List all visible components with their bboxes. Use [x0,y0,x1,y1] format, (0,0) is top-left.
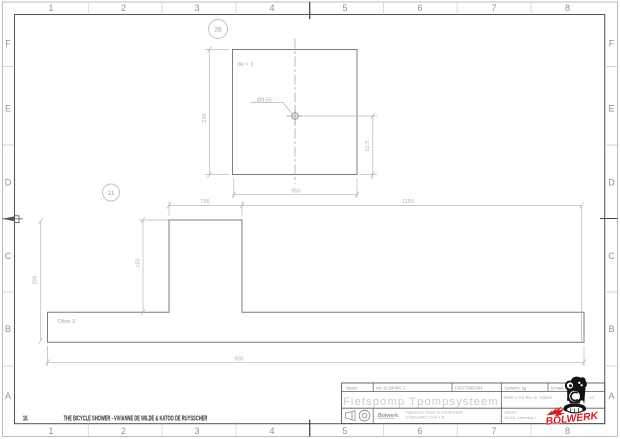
svg-text:1/207708/2044: 1/207708/2044 [455,385,484,390]
svg-text:250: 250 [202,113,208,122]
svg-text:52.5: 52.5 [365,141,371,152]
svg-text:4: 4 [269,426,274,436]
svg-text:7: 7 [491,426,496,436]
svg-text:Gewicht: kg: Gewicht: kg [505,385,528,390]
svg-text:1150: 1150 [402,199,414,205]
svg-text:756: 756 [200,199,209,205]
svg-text:950: 950 [291,189,300,195]
svg-text:8: 8 [565,3,570,13]
svg-text:3: 3 [194,426,199,436]
svg-text:150: 150 [136,258,142,267]
svg-text:2: 2 [121,3,126,13]
svg-text:D: D [5,178,12,188]
svg-text:900: 900 [234,356,243,362]
svg-text:B: B [608,324,614,334]
svg-text:Dikte 3: Dikte 3 [58,319,75,325]
svg-text:F: F [5,39,11,49]
svg-text:B: B [5,324,11,334]
svg-text:Fietspomp Tpompsysteem: Fietspomp Tpompsysteem [343,396,499,408]
svg-text:D: D [608,178,615,188]
svg-text:Cortina BRC Poort 1 B: Cortina BRC Poort 1 B [406,416,445,420]
svg-text:dik = 3: dik = 3 [237,62,253,68]
svg-text:3: 3 [194,3,199,13]
svg-text:Ingenieurs- Raad 11 Industriep: Ingenieurs- Raad 11 Industriepark [406,411,463,415]
svg-text:5: 5 [342,3,347,13]
svg-text:4: 4 [269,3,274,13]
svg-text:MHW ± 0,5 Riv.-nr. Datum: MHW ± 0,5 Riv.-nr. Datum [504,395,553,400]
svg-text:1: 1 [48,426,53,436]
svg-text:2: 2 [121,426,126,436]
svg-text:Naam: Naam [346,386,358,391]
svg-text:A: A [608,391,614,401]
svg-text:E: E [5,104,11,114]
svg-text:1: 1 [48,3,53,13]
svg-text:6: 6 [417,3,422,13]
svg-text:C: C [5,251,12,261]
svg-text:11: 11 [108,190,115,197]
svg-text:F: F [609,39,615,49]
svg-text:E: E [608,104,614,114]
svg-text:Ø8.55: Ø8.55 [257,97,272,103]
svg-text:8: 8 [565,426,570,436]
svg-text:26: 26 [214,27,222,34]
svg-text:A4: A4 [589,395,595,400]
svg-text:THE BICYCLE SHOWER - VIVIANNE: THE BICYCLE SHOWER - VIVIANNE DE WILDE &… [64,416,208,423]
svg-text:Uitvoer:: Uitvoer: [505,411,518,415]
svg-text:NX ±0.5/KMG 1: NX ±0.5/KMG 1 [376,385,406,390]
svg-text:A: A [5,391,11,401]
svg-text:7: 7 [491,3,496,13]
svg-text:6: 6 [417,426,422,436]
svg-text:10.: 10. [23,416,29,423]
svg-text:205: 205 [33,275,39,284]
svg-text:05 feb - tekening 1: 05 feb - tekening 1 [505,416,536,420]
svg-text:5: 5 [342,426,347,436]
svg-text:C: C [608,251,615,261]
